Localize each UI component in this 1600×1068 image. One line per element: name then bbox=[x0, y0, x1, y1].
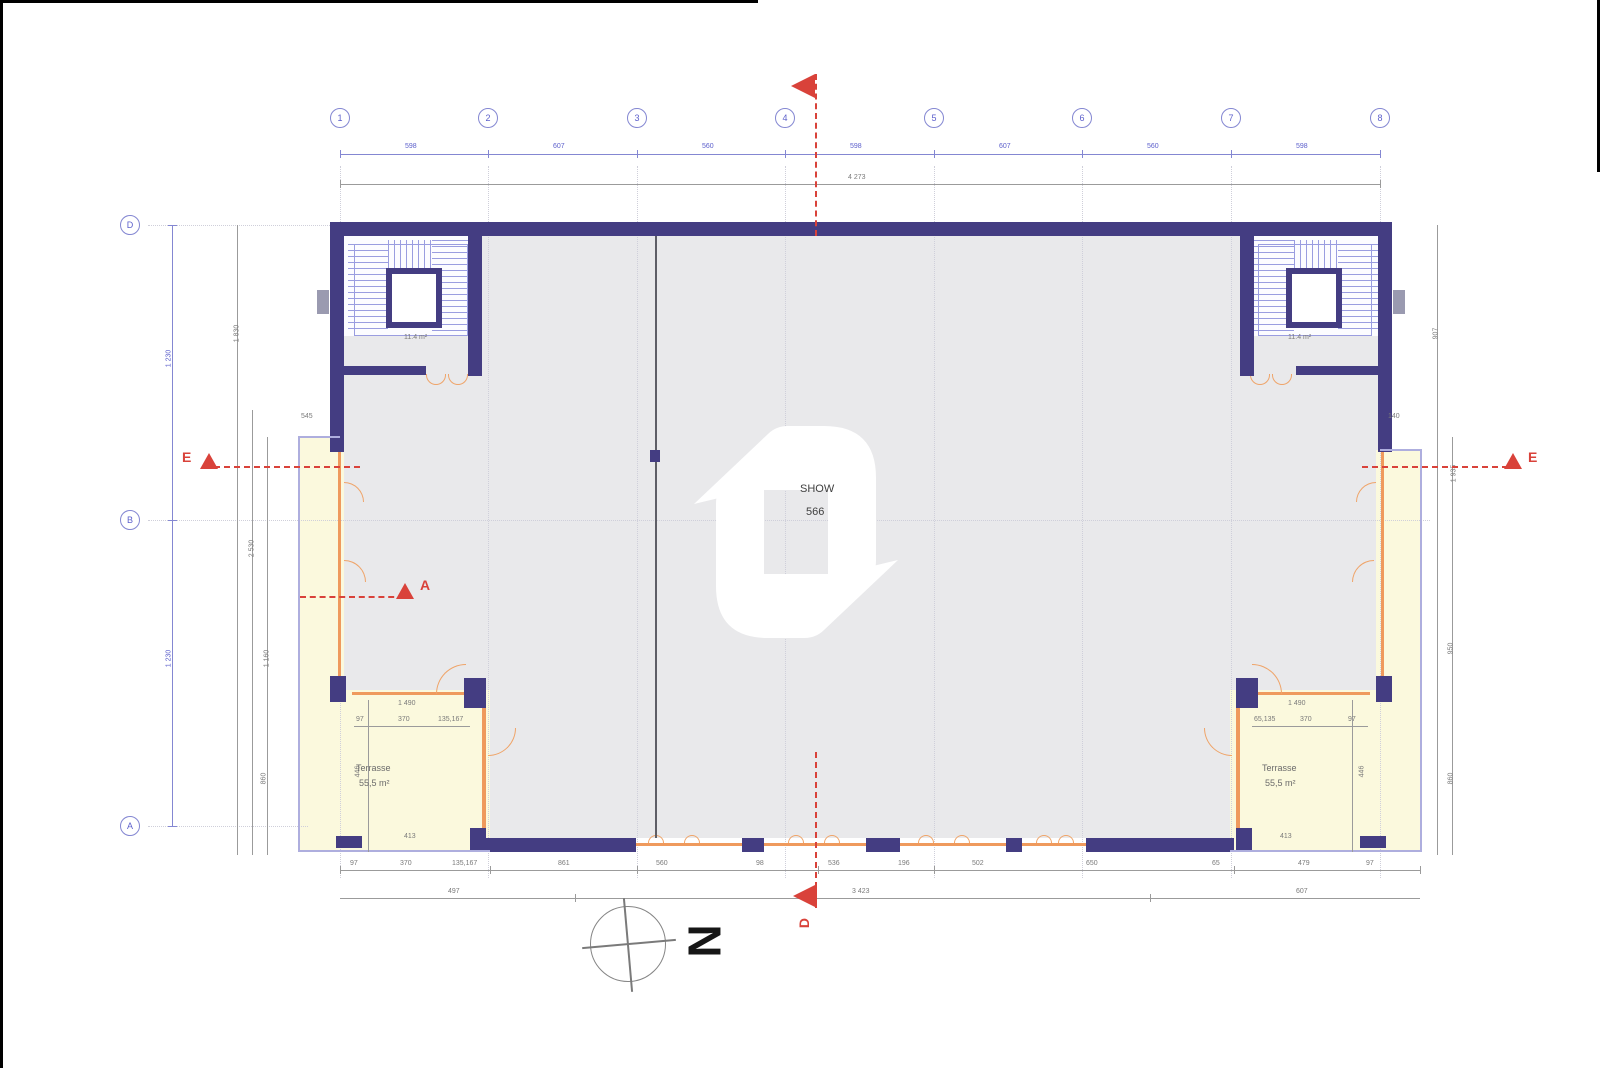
grid-bubble-4: 4 bbox=[775, 108, 795, 128]
terrace-right-corner-c bbox=[1360, 836, 1386, 848]
watermark-logo bbox=[678, 414, 914, 650]
dim-line-left bbox=[172, 225, 173, 826]
grid-bubble-7: 7 bbox=[1221, 108, 1241, 128]
dim-aux-label: 860 bbox=[260, 773, 267, 785]
section-line-e-left bbox=[214, 466, 360, 468]
dim-tick bbox=[1082, 150, 1083, 158]
grid-line-3 bbox=[637, 166, 638, 878]
dim-b1: 560 bbox=[656, 860, 668, 867]
page-edge-top bbox=[0, 0, 758, 3]
dim-b1: 97 bbox=[1366, 860, 1374, 867]
grid-bubble-label: 8 bbox=[1377, 113, 1382, 123]
terrace-right-side-glazing bbox=[1236, 694, 1240, 850]
partition-nub bbox=[650, 450, 660, 462]
terrace-right-name: Terrasse bbox=[1262, 764, 1297, 773]
grid-line-5 bbox=[934, 166, 935, 878]
dim-bay-label: 598 bbox=[850, 143, 862, 150]
dim-tick bbox=[168, 225, 177, 226]
wall-bottom-right bbox=[1086, 838, 1234, 852]
dim-line-bottom1 bbox=[340, 870, 1420, 871]
section-line-e-right bbox=[1362, 466, 1508, 468]
terrace-dim: 97 bbox=[356, 716, 364, 723]
loggia-right-outline-bottom bbox=[1230, 850, 1422, 852]
grid-bubble-3: 3 bbox=[627, 108, 647, 128]
dim-offset-left: 545 bbox=[301, 413, 313, 420]
grid-bubble-label: 7 bbox=[1228, 113, 1233, 123]
dim-b1: 861 bbox=[558, 860, 570, 867]
dim-b1: 98 bbox=[756, 860, 764, 867]
dim-bay-label: 607 bbox=[553, 143, 565, 150]
stair-left-area-label: 11.4 m² bbox=[404, 334, 427, 341]
terrace-right-fill bbox=[1230, 690, 1421, 850]
grid-bubble-label: 5 bbox=[931, 113, 936, 123]
section-arrow-d-bottom bbox=[793, 884, 817, 908]
dim-tick bbox=[488, 150, 489, 158]
grid-bubble-label: 1 bbox=[337, 113, 342, 123]
dim-b1: 65 bbox=[1212, 860, 1220, 867]
dim-tick bbox=[934, 866, 935, 874]
wall-bottom-left bbox=[486, 838, 636, 852]
dim-tick bbox=[934, 150, 935, 158]
grid-bubble-B: B bbox=[120, 510, 140, 530]
section-arrow-d-top bbox=[791, 74, 815, 98]
wall-stair-left-bottom bbox=[344, 366, 426, 375]
dim-b1: 196 bbox=[898, 860, 910, 867]
dim-bay-label: 560 bbox=[702, 143, 714, 150]
grid-bubble-label: 6 bbox=[1079, 113, 1084, 123]
terrace-left-dim-vline bbox=[368, 700, 369, 852]
dim-tick bbox=[1231, 150, 1232, 158]
dim-aux-label: 860 bbox=[1447, 773, 1454, 785]
dim-b1: 502 bbox=[972, 860, 984, 867]
terrace-left-corner-a bbox=[330, 676, 346, 702]
dim-b1: 370 bbox=[400, 860, 412, 867]
dim-tick bbox=[637, 150, 638, 158]
dim-line-overall bbox=[340, 184, 1380, 185]
terrace-left-corner-b bbox=[464, 678, 486, 708]
terrace-right-area: 55,5 m² bbox=[1265, 779, 1296, 788]
wall-left bbox=[330, 222, 344, 452]
dim-tick bbox=[340, 866, 341, 874]
dim-tick bbox=[1380, 150, 1381, 158]
loggia-left-outline-side bbox=[298, 437, 300, 852]
dim-tick bbox=[340, 150, 341, 158]
wall-stair-right-inner bbox=[1240, 228, 1254, 376]
terrace-dim: 135,167 bbox=[438, 716, 463, 723]
dim-b1: 97 bbox=[350, 860, 358, 867]
terrace-dim: 446 bbox=[1358, 766, 1365, 778]
dim-bay-label: 598 bbox=[1296, 143, 1308, 150]
dim-tick bbox=[1150, 894, 1151, 902]
terrace-right-corner-d bbox=[1236, 828, 1252, 850]
dim-aux-left-1 bbox=[237, 225, 238, 855]
exterior-door-right bbox=[1393, 290, 1405, 314]
exterior-door-left bbox=[317, 290, 329, 314]
terrace-dim: 370 bbox=[398, 716, 410, 723]
terrace-left-corner-c bbox=[336, 836, 362, 848]
grid-bubble-label: 2 bbox=[485, 113, 490, 123]
grid-bubble-label: D bbox=[127, 220, 134, 230]
section-arrow-a bbox=[396, 583, 414, 599]
dim-b1: 479 bbox=[1298, 860, 1310, 867]
dim-aux-label: 1 160 bbox=[263, 650, 270, 668]
terrace-dim: 1 490 bbox=[1288, 700, 1306, 707]
floor-plan-canvas: 598 607 560 598 607 560 598 4 273 1 2 3 … bbox=[0, 0, 1600, 1068]
terrace-dim: 413 bbox=[1280, 833, 1292, 840]
grid-bubble-1: 1 bbox=[330, 108, 350, 128]
dim-b2: 497 bbox=[448, 888, 460, 895]
terrace-dim: 65,135 bbox=[1254, 716, 1275, 723]
loggia-right-outline-top bbox=[1380, 449, 1422, 451]
dim-tick bbox=[637, 866, 638, 874]
grid-bubble-8: 8 bbox=[1370, 108, 1390, 128]
terrace-left-side-glazing bbox=[482, 694, 486, 850]
section-arrow-e-right bbox=[1504, 453, 1522, 469]
grid-bubble-A: A bbox=[120, 816, 140, 836]
section-line-a bbox=[300, 596, 404, 598]
dim-b1: 536 bbox=[828, 860, 840, 867]
dim-tick bbox=[1420, 866, 1421, 874]
terrace-left-name: Terrasse bbox=[356, 764, 391, 773]
terrace-dim: 413 bbox=[404, 833, 416, 840]
grid-bubble-D: D bbox=[120, 215, 140, 235]
grid-line-6 bbox=[1082, 166, 1083, 878]
glazing-right-strip bbox=[1381, 452, 1384, 694]
grid-bubble-2: 2 bbox=[478, 108, 498, 128]
dim-tick bbox=[168, 520, 177, 521]
dim-line-top bbox=[340, 154, 1380, 155]
glazing-left-strip bbox=[338, 452, 341, 694]
terrace-left-corner-d bbox=[470, 828, 486, 850]
dim-tick bbox=[168, 826, 177, 827]
grid-bubble-label: B bbox=[127, 515, 133, 525]
grid-bubble-6: 6 bbox=[1072, 108, 1092, 128]
dim-aux-label: 1 830 bbox=[233, 325, 240, 343]
dim-bay-label: 607 bbox=[999, 143, 1011, 150]
dim-tick bbox=[575, 894, 576, 902]
dim-tick bbox=[1234, 866, 1235, 874]
dim-aux-right-1 bbox=[1437, 225, 1438, 855]
dim-b1: 135,167 bbox=[452, 860, 477, 867]
section-label-e-right: E bbox=[1528, 450, 1537, 464]
dim-aux-label: 950 bbox=[1447, 643, 1454, 655]
elevator-shaft-right bbox=[1286, 268, 1342, 328]
wall-bottom-pier1 bbox=[742, 838, 764, 852]
grid-bubble-label: 3 bbox=[634, 113, 639, 123]
grid-bubble-label: 4 bbox=[782, 113, 787, 123]
dim-aux-label: 2 530 bbox=[248, 540, 255, 558]
terrace-left-area: 55,5 m² bbox=[359, 779, 390, 788]
elevator-shaft-left bbox=[386, 268, 442, 328]
terrace-dim: 97 bbox=[1348, 716, 1356, 723]
dim-overall-label: 4 273 bbox=[848, 174, 866, 181]
grid-line-2 bbox=[488, 166, 489, 878]
page-edge-left bbox=[0, 0, 3, 1068]
section-label-a: A bbox=[420, 578, 430, 592]
terrace-dim: 1 490 bbox=[398, 700, 416, 707]
dim-offset-right: 140 bbox=[1388, 413, 1400, 420]
section-label-e-left: E bbox=[182, 450, 191, 464]
stair-right-area-label: 11.4 m² bbox=[1288, 334, 1311, 341]
partition-line bbox=[655, 236, 657, 838]
dim-aux-label: 907 bbox=[1432, 328, 1439, 340]
dim-left-bay-label: 1 230 bbox=[165, 650, 172, 668]
showroom-area-label: 566 bbox=[806, 507, 824, 518]
grid-bubble-label: A bbox=[127, 821, 133, 831]
terrace-right-corner-a bbox=[1376, 676, 1392, 702]
dim-b2: 607 bbox=[1296, 888, 1308, 895]
dim-bay-label: 598 bbox=[405, 143, 417, 150]
dim-line-bottom2 bbox=[340, 898, 1420, 899]
terrace-left-fill bbox=[299, 690, 490, 850]
north-label: N bbox=[682, 924, 728, 957]
wall-top bbox=[330, 222, 1392, 236]
terrace-right-corner-b bbox=[1236, 678, 1258, 708]
terrace-left-dim-line bbox=[354, 726, 470, 727]
dim-tick bbox=[785, 150, 786, 158]
wall-stair-right-bottom bbox=[1296, 366, 1378, 375]
wall-stair-left-inner bbox=[468, 228, 482, 376]
terrace-right-dim-line bbox=[1252, 726, 1368, 727]
section-label-d: D bbox=[797, 918, 811, 928]
dim-tick bbox=[340, 180, 341, 188]
dim-tick bbox=[1380, 180, 1381, 188]
dim-tick bbox=[490, 866, 491, 874]
section-line-d-top bbox=[815, 74, 817, 236]
showroom-label: SHOW bbox=[800, 484, 834, 495]
dim-bay-label: 560 bbox=[1147, 143, 1159, 150]
grid-line-7 bbox=[1231, 166, 1232, 878]
loggia-right-outline-side bbox=[1420, 450, 1422, 852]
wall-bottom-pier3 bbox=[1006, 838, 1022, 852]
loggia-left-outline-top bbox=[298, 436, 340, 438]
dim-b2: 3 423 bbox=[852, 888, 870, 895]
loggia-left-outline-bottom bbox=[298, 850, 490, 852]
section-arrow-e-left bbox=[200, 453, 218, 469]
dim-left-bay-label: 1 230 bbox=[165, 350, 172, 368]
dim-aux-left-2 bbox=[252, 410, 253, 855]
wall-bottom-pier2 bbox=[866, 838, 900, 852]
dim-tick bbox=[818, 866, 819, 874]
dim-aux-left-3 bbox=[267, 437, 268, 855]
dim-b1: 650 bbox=[1086, 860, 1098, 867]
terrace-dim: 370 bbox=[1300, 716, 1312, 723]
grid-bubble-5: 5 bbox=[924, 108, 944, 128]
